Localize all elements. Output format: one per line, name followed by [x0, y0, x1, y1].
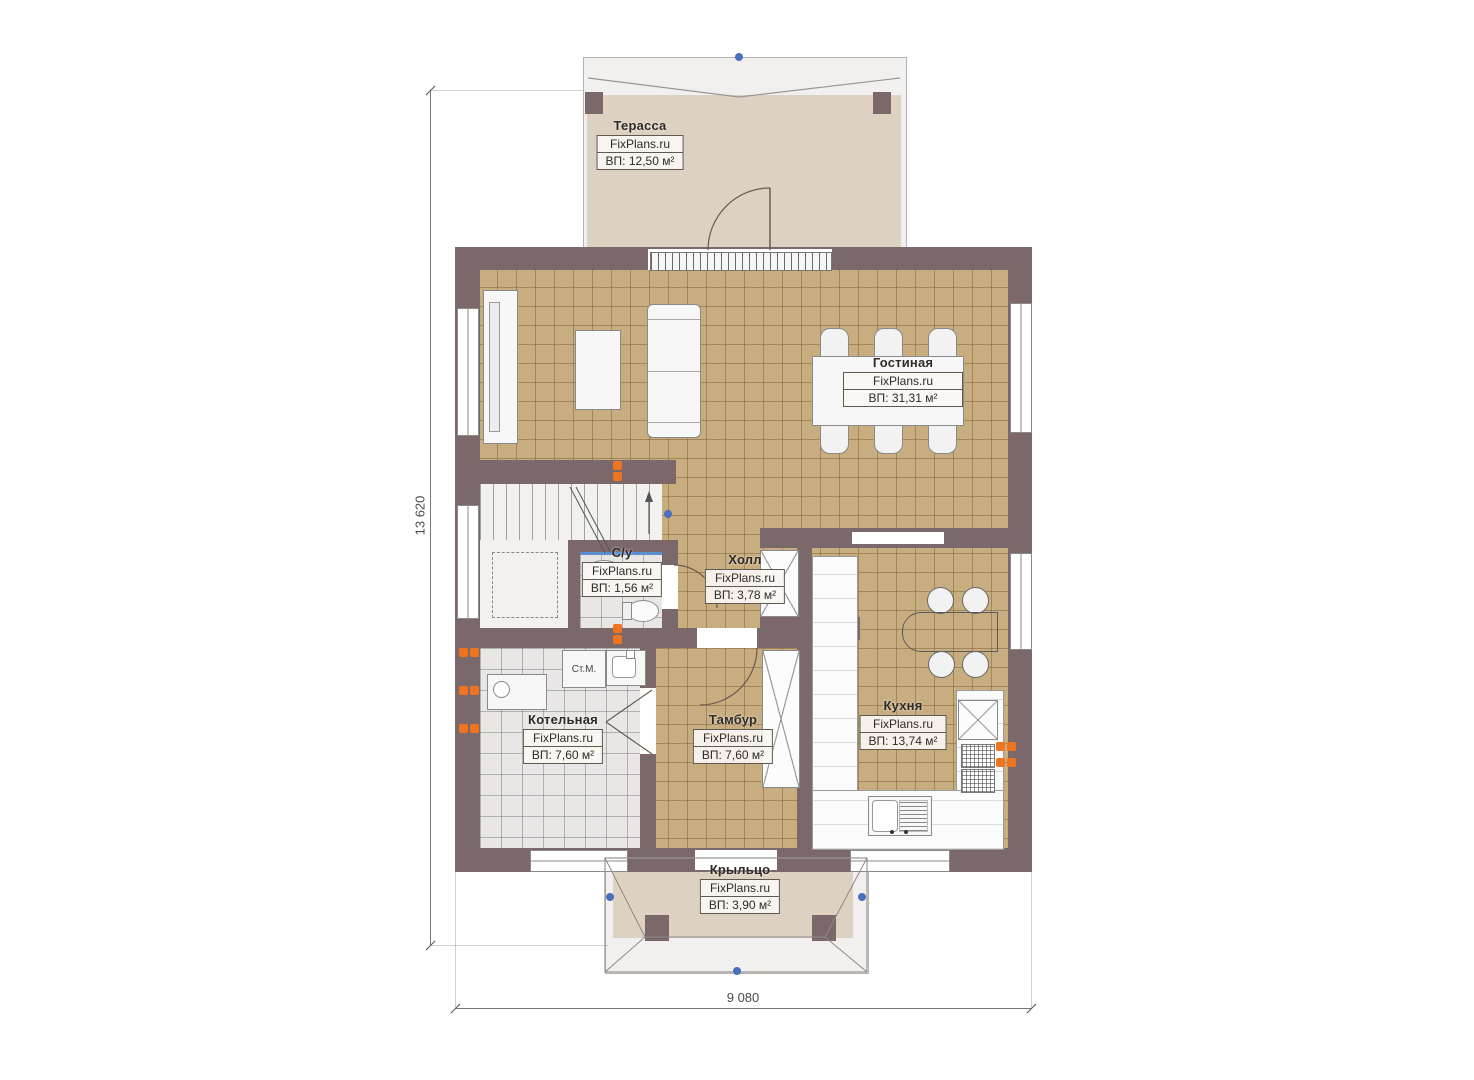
room-name: Крыльцо [700, 862, 780, 877]
kitchen-table [902, 612, 998, 652]
kitchen-sink-drainer [899, 800, 928, 832]
room-label-vestibule: Тамбур FixPlans.ru ВП: 7,60 м² [693, 712, 773, 764]
dimension-width-label: 9 080 [727, 990, 760, 1005]
boiler-burner-circle [493, 681, 510, 698]
room-info-box: FixPlans.ru ВП: 1,56 м² [582, 562, 662, 597]
room-info-box: FixPlans.ru ВП: 12,50 м² [597, 135, 684, 170]
radiator-marker [459, 686, 468, 695]
sink-handle-dot [904, 830, 908, 834]
room-info-box: FixPlans.ru ВП: 13,74 м² [860, 715, 947, 750]
terrace-door-threshold [650, 252, 832, 271]
dimension-line-horizontal [455, 1008, 1032, 1009]
room-name: Котельная [523, 712, 603, 727]
floor-plan: Ст.М. [0, 0, 1474, 1080]
sofa-armrest-line-bottom [648, 422, 700, 423]
kitchen-stool [927, 587, 954, 614]
dimension-extension-right [1031, 872, 1032, 1008]
watermark: FixPlans.ru [706, 570, 784, 587]
watermark: FixPlans.ru [701, 880, 779, 897]
porch-post-right [812, 915, 836, 941]
room-label-porch: Крыльцо FixPlans.ru ВП: 3,90 м² [700, 862, 780, 914]
kitchen-lintel-opening [852, 532, 944, 544]
tv-set [489, 302, 500, 432]
window-boiler-bottom [530, 850, 628, 872]
room-info-box: FixPlans.ru ВП: 31,31 м² [843, 372, 963, 407]
radiator-marker [996, 758, 1005, 767]
room-area: ВП: 7,60 м² [694, 747, 772, 763]
radiator-marker [613, 624, 622, 633]
stove-burners-top [961, 744, 995, 768]
room-info-box: FixPlans.ru ВП: 3,78 м² [705, 569, 785, 604]
room-name: Терасса [597, 118, 684, 133]
terrace-post-right [873, 92, 891, 114]
dimension-extension-bottom [430, 945, 608, 946]
room-label-living-room: Гостиная FixPlans.ru ВП: 31,31 м² [843, 355, 963, 407]
room-label-kitchen: Кухня FixPlans.ru ВП: 13,74 м² [860, 698, 947, 750]
room-label-hall: Холл FixPlans.ru ВП: 3,78 м² [705, 552, 785, 604]
sink-handle-dot [890, 830, 894, 834]
watermark: FixPlans.ru [844, 373, 962, 390]
watermark: FixPlans.ru [694, 730, 772, 747]
dining-chair [928, 422, 957, 454]
coffee-table [575, 330, 621, 410]
dimension-height-label: 13 620 [412, 496, 427, 536]
room-info-box: FixPlans.ru ВП: 7,60 м² [523, 729, 603, 764]
sofa-seat-line [648, 371, 700, 372]
room-name: С/у [582, 545, 662, 560]
room-label-boiler-room: Котельная FixPlans.ru ВП: 7,60 м² [523, 712, 603, 764]
room-label-terrace: Терасса FixPlans.ru ВП: 12,50 м² [597, 118, 684, 170]
toilet-tank [622, 602, 632, 620]
staircase [480, 484, 662, 540]
radiator-marker [459, 724, 468, 733]
room-area: ВП: 7,60 м² [524, 747, 602, 763]
window-kitchen-bottom [850, 850, 950, 872]
dimension-line-vertical [430, 90, 431, 945]
stove-burners-bottom [961, 769, 995, 793]
room-area: ВП: 13,74 м² [861, 733, 946, 749]
room-area: ВП: 31,31 м² [844, 390, 962, 406]
window-living-left [457, 308, 479, 436]
vestibule-door-opening [697, 628, 757, 648]
room-name: Тамбур [693, 712, 773, 727]
boiler-sink-faucet [626, 650, 635, 659]
dining-chair [874, 422, 903, 454]
wall-living-stairs [455, 460, 676, 484]
terrace-post-left [585, 92, 603, 114]
bathroom-door-opening [662, 565, 678, 609]
kitchen-sink-basin [872, 800, 898, 832]
room-name: Гостиная [843, 355, 963, 370]
sofa [647, 304, 701, 438]
boiler-door-opening [640, 688, 656, 754]
wall-bathroom-left [568, 540, 580, 630]
sofa-armrest-line-top [648, 319, 700, 320]
stair-landing-outline [492, 552, 558, 618]
window-kitchen-right [1010, 553, 1032, 650]
washing-machine: Ст.М. [562, 650, 606, 688]
room-name: Кухня [860, 698, 947, 713]
radiator-marker [459, 648, 468, 657]
room-area: ВП: 3,90 м² [701, 897, 779, 913]
kitchen-stool [962, 587, 989, 614]
wall-boiler-top [455, 628, 676, 648]
radiator-marker [613, 461, 622, 470]
kitchen-counter-left [812, 556, 858, 792]
room-area: ВП: 3,78 м² [706, 587, 784, 603]
room-name: Холл [705, 552, 785, 567]
fridge [958, 700, 998, 740]
radiator-marker [996, 742, 1005, 751]
dimension-extension-top [430, 90, 583, 91]
kitchen-stool [928, 651, 955, 678]
watermark: FixPlans.ru [861, 716, 946, 733]
washing-machine-label: Ст.М. [563, 651, 605, 687]
room-info-box: FixPlans.ru ВП: 7,60 м² [693, 729, 773, 764]
watermark: FixPlans.ru [583, 563, 661, 580]
kitchen-stool [962, 651, 989, 678]
room-area: ВП: 12,50 м² [598, 153, 683, 169]
room-info-box: FixPlans.ru ВП: 3,90 м² [700, 879, 780, 914]
room-area: ВП: 1,56 м² [583, 580, 661, 596]
window-stairs-left [457, 505, 479, 619]
porch-post-left [645, 915, 669, 941]
window-living-right [1010, 303, 1032, 433]
dimension-extension-left [455, 872, 456, 1008]
boiler-sink-basin [612, 656, 636, 678]
watermark: FixPlans.ru [598, 136, 683, 153]
watermark: FixPlans.ru [524, 730, 602, 747]
room-label-bathroom: С/у FixPlans.ru ВП: 1,56 м² [582, 545, 662, 597]
dining-chair [820, 422, 849, 454]
